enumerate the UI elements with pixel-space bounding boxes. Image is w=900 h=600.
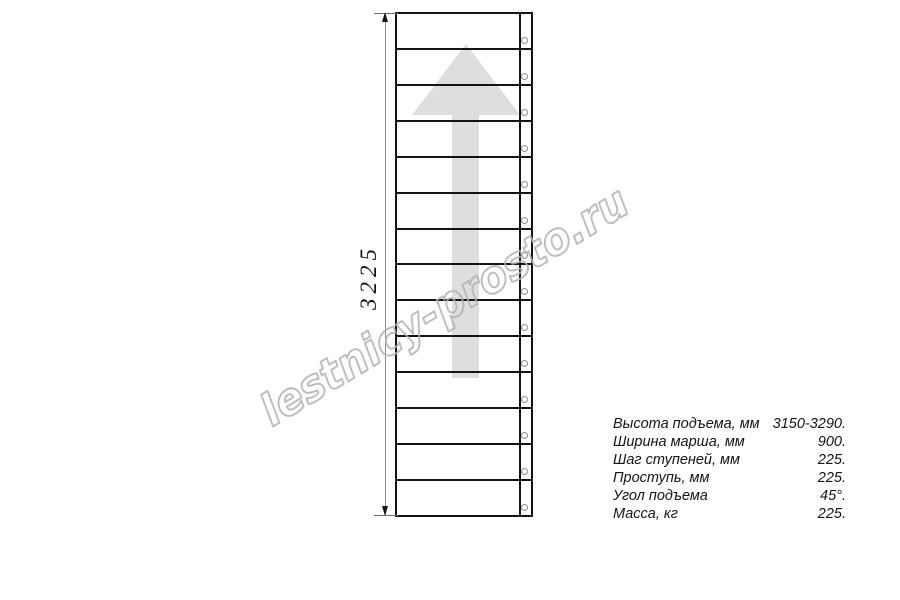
height-dimension-label: 3225: [357, 227, 381, 327]
dimension-arrow-down-icon: [382, 506, 388, 516]
spec-value: 900.: [818, 433, 846, 451]
spec-value: 225.: [818, 505, 846, 523]
stair-step: [397, 337, 531, 373]
mounting-hole-icon: [521, 396, 528, 403]
stair-step: [397, 481, 531, 515]
stair-step: [397, 301, 531, 337]
stair-step: [397, 409, 531, 445]
spec-label: Шаг ступеней, мм: [613, 451, 740, 469]
mounting-hole-icon: [521, 217, 528, 224]
drawing-canvas: 3225 lestnicy-prosto.ru Высота подъема, …: [0, 0, 900, 600]
mounting-hole-icon: [521, 181, 528, 188]
mounting-hole-icon: [521, 360, 528, 367]
spec-row: Проступь, мм225.: [613, 469, 846, 487]
dimension-arrow-up-icon: [382, 12, 388, 22]
mounting-hole-icon: [521, 432, 528, 439]
stair-step: [397, 14, 531, 50]
staircase-plan: [395, 12, 533, 517]
spec-row: Ширина марша, мм900.: [613, 433, 846, 451]
mounting-hole-icon: [521, 145, 528, 152]
dimension-line: [385, 13, 386, 516]
spec-value: 3150-3290.: [773, 415, 846, 433]
mounting-hole-icon: [521, 252, 528, 259]
spec-row: Угол подъема45°.: [613, 487, 846, 505]
mounting-hole-icon: [521, 288, 528, 295]
specs-table: Высота подъема, мм3150-3290.Ширина марша…: [613, 415, 846, 523]
stair-step: [397, 158, 531, 194]
stair-step: [397, 50, 531, 86]
stair-step: [397, 445, 531, 481]
spec-value: 225.: [818, 451, 846, 469]
spec-value: 225.: [818, 469, 846, 487]
stair-step: [397, 194, 531, 230]
stair-step: [397, 373, 531, 409]
spec-label: Угол подъема: [613, 487, 708, 505]
spec-row: Шаг ступеней, мм225.: [613, 451, 846, 469]
spec-label: Ширина марша, мм: [613, 433, 745, 451]
stair-step: [397, 265, 531, 301]
stringer-line: [519, 14, 521, 515]
spec-label: Масса, кг: [613, 505, 678, 523]
mounting-hole-icon: [521, 37, 528, 44]
spec-value: 45°.: [820, 487, 846, 505]
mounting-hole-icon: [521, 73, 528, 80]
stair-step: [397, 86, 531, 122]
stair-step: [397, 122, 531, 158]
stair-step: [397, 230, 531, 266]
staircase-steps: [397, 14, 531, 515]
spec-label: Проступь, мм: [613, 469, 709, 487]
specs-rows: Высота подъема, мм3150-3290.Ширина марша…: [613, 415, 846, 523]
mounting-hole-icon: [521, 324, 528, 331]
mounting-hole-icon: [521, 504, 528, 511]
mounting-hole-icon: [521, 468, 528, 475]
spec-label: Высота подъема, мм: [613, 415, 760, 433]
mounting-hole-icon: [521, 109, 528, 116]
spec-row: Масса, кг225.: [613, 505, 846, 523]
spec-row: Высота подъема, мм3150-3290.: [613, 415, 846, 433]
